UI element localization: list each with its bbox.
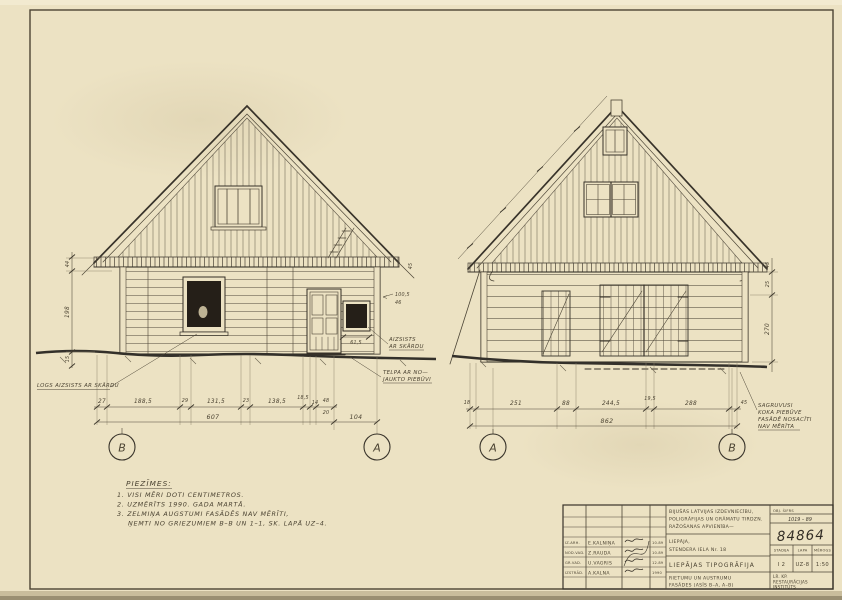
dim-offset-label: 104: [349, 414, 362, 421]
notes-title: PIEZĪMES:: [126, 479, 172, 488]
dim-label: 270: [765, 323, 771, 335]
callout-room-line2: JAUKTO PIEBŪVI: [382, 376, 431, 383]
sheet-title-line: RIETUMU UN AUSTRUMU: [669, 576, 731, 582]
note-line: 3. ZELMIŅA AUGSTUMI FASĀDĒS NAV MĒRĪTI,: [117, 509, 289, 518]
eave-rafter-band: [94, 257, 399, 267]
dim-label: 251: [510, 401, 522, 407]
person-name: Z.RAUDA: [588, 551, 611, 557]
date-value: 1990: [652, 571, 662, 575]
dim-label: 100,5: [395, 292, 410, 298]
sheet-value: UZ-8: [796, 562, 810, 568]
institute-line: INSTITŪTS: [773, 585, 796, 590]
dim-label: 188,5: [134, 399, 152, 405]
dim-label: 18: [464, 400, 471, 406]
person-name: U.VAGRIS: [588, 561, 612, 567]
sheet-label: LAPA: [798, 549, 808, 553]
callout-room-line1: TELPA AR NO—: [383, 370, 428, 376]
callout-tin-line1: AIZSISTS: [388, 337, 416, 343]
dim-label: 20: [323, 410, 330, 416]
role-label: GR.VAD.: [565, 561, 581, 565]
address-line: LIEPĀJA,: [669, 538, 690, 545]
callout-annex-line3: FASĀDĒ NOSACĪTI: [758, 416, 812, 423]
gable-window: [211, 186, 266, 230]
dim-label: 45: [408, 263, 414, 270]
dim-label: 19,5: [644, 396, 655, 402]
dim-label: 138,5: [268, 399, 286, 405]
axis-label: A: [488, 442, 497, 455]
dim-label: 88: [562, 401, 570, 407]
tin-boarded-window: [343, 301, 370, 331]
address-line: STENDERA IELA Nr. 18: [669, 547, 726, 553]
callout-annex-line1: SAGRUVUSI: [758, 403, 793, 409]
sheet-title-line: FASĀDES (ASĪS B–A, A–B): [669, 582, 734, 589]
stage-label: STADIJA: [774, 549, 790, 553]
corner-board: [120, 267, 126, 354]
dim-label: 46: [395, 300, 402, 306]
boarded-window: [180, 277, 228, 336]
dim-total-label: 607: [206, 414, 219, 421]
gable-double-window: [584, 182, 638, 217]
object-code-value: 1019 – 89: [788, 517, 812, 523]
drawing-sheet: 27 188,5 29 131,5 23 138,5 18,5 14 48 20…: [0, 0, 842, 600]
dim-label: 45: [765, 262, 771, 269]
stage-value: I 2: [778, 562, 786, 568]
axis-label: B: [118, 442, 126, 455]
org-line: BIJUŠĀS LATVIJAS IZDEVNIECĪBU,: [669, 508, 754, 515]
gable-hatch-window: [603, 127, 627, 155]
eave-rafter-band: [468, 263, 767, 272]
paper-stain: [520, 400, 760, 490]
date-value: 10.89: [652, 541, 664, 545]
dim-label: 23: [243, 398, 250, 404]
date-value: 10.89: [652, 551, 664, 555]
callout-window-tin: LOGS AIZSISTS AR SKĀRDU: [37, 382, 119, 389]
role-label: IZSTRĀD.: [565, 570, 583, 575]
person-name: A.KALNA: [588, 571, 610, 577]
dim-label: 198: [65, 306, 71, 318]
date-value: 12.89: [652, 561, 664, 565]
dim-label: 44: [65, 261, 71, 268]
scale-value: 1:50: [816, 562, 829, 568]
scale-label: MĒROGS: [814, 548, 831, 553]
dim-label: 14: [312, 400, 319, 406]
org-line: POLIGRĀFIJAS UN GRĀMATU TIRDZN.: [669, 516, 763, 523]
inventory-number: 84864: [777, 527, 825, 545]
corner-board: [374, 267, 380, 354]
corner-board: [481, 272, 487, 362]
axis-label: A: [372, 442, 381, 455]
role-label: NOD.VAD.: [565, 551, 585, 555]
note-line: 1. VISI MĒRI DOTI CENTIMETROS.: [117, 490, 244, 499]
person-name: E.KALNIŅA: [588, 541, 616, 547]
dim-label: 244,5: [602, 401, 620, 407]
callout-tin-line2: AR SKĀRDU: [388, 343, 424, 350]
note-line: 2. UZMĒRĪTS 1990. GADA MARTĀ.: [117, 500, 246, 509]
scan-edge-top: [0, 0, 842, 5]
dim-total-label: 862: [600, 418, 613, 425]
note-line: ŅEMTI NO GRIEZUMIEM B–B UN 1–1, SK. LAPĀ…: [128, 519, 327, 528]
dim-label: 15: [65, 356, 71, 363]
callout-annex-line4: NAV MĒRĪTA: [758, 423, 794, 430]
dim-label: 25: [765, 281, 771, 288]
ridge-finial: [611, 100, 622, 116]
entry-door: [303, 289, 345, 355]
object-code-label: OBJ. ŠIFRS: [773, 508, 794, 513]
callout-annex-line2: KOKA PIEBŪVE: [758, 409, 802, 416]
dim-label: 45: [741, 400, 748, 406]
drawing-canvas: 27 188,5 29 131,5 23 138,5 18,5 14 48 20…: [0, 0, 842, 600]
dim-label: 48: [323, 398, 330, 404]
dim-label: 29: [182, 398, 189, 404]
dim-label: 27: [98, 399, 106, 405]
double-board-door: [600, 285, 688, 356]
building-name: LIEPĀJAS TIPOGRĀFIJA: [669, 562, 755, 569]
institute-line: LR. KP.: [773, 574, 788, 579]
board-door: [542, 291, 570, 356]
dim-label: 18,5: [297, 395, 308, 401]
scan-edge-bottom-dark: [0, 596, 842, 600]
axis-label: B: [728, 442, 736, 455]
corner-board: [742, 272, 748, 362]
dim-label: 288: [685, 401, 697, 407]
role-label: IZ.ARH.: [565, 541, 580, 545]
dim-label: 131,5: [207, 399, 225, 405]
dim-label: 61,5: [350, 340, 361, 346]
